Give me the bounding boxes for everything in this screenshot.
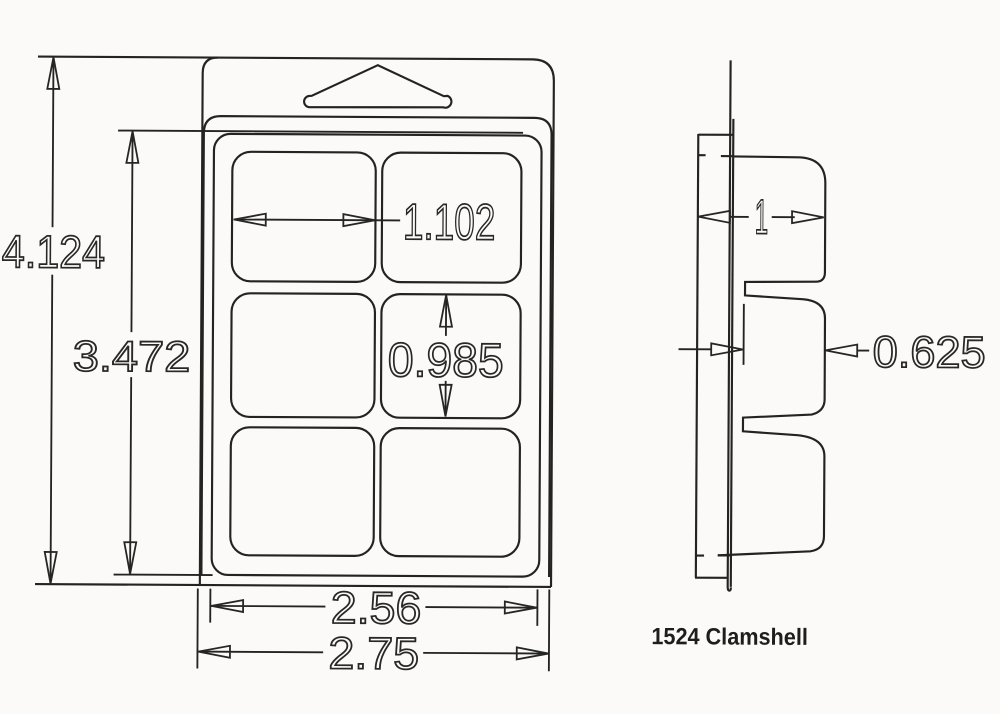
svg-text:2.75: 2.75	[328, 628, 419, 680]
svg-text:3.472: 3.472	[73, 333, 191, 382]
svg-text:0.625: 0.625	[873, 328, 986, 378]
svg-text:1.102: 1.102	[403, 193, 496, 251]
svg-text:0.985: 0.985	[388, 334, 504, 388]
svg-text:2.56: 2.56	[331, 582, 422, 634]
svg-text:1524 Clamshell: 1524 Clamshell	[651, 623, 808, 650]
svg-text:4.124: 4.124	[2, 225, 105, 278]
svg-text:1: 1	[755, 190, 769, 244]
